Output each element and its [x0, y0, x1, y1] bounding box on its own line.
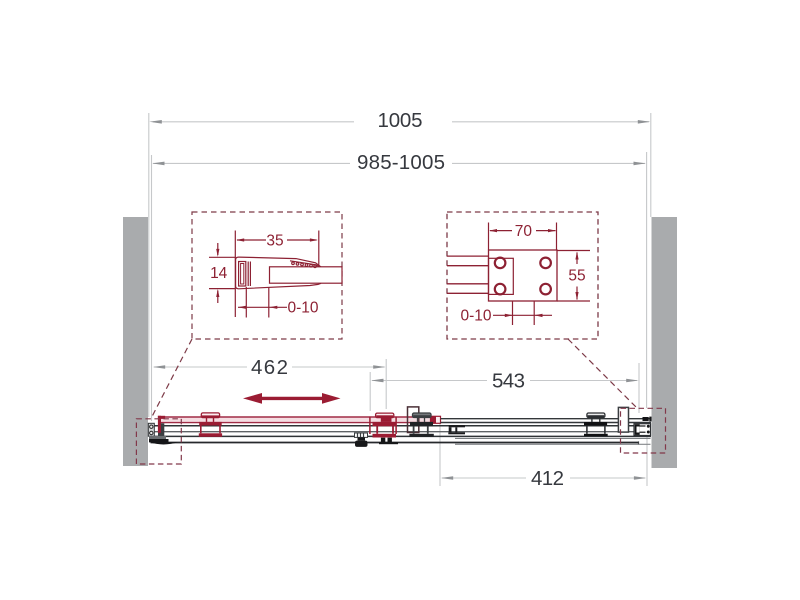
svg-text:0-10: 0-10 — [287, 299, 318, 316]
svg-text:543: 543 — [492, 370, 525, 393]
svg-text:462: 462 — [251, 356, 288, 379]
svg-text:55: 55 — [568, 268, 585, 285]
svg-text:70: 70 — [515, 223, 533, 240]
svg-text:35: 35 — [266, 232, 283, 249]
svg-text:985-1005: 985-1005 — [357, 151, 445, 174]
svg-text:0-10: 0-10 — [460, 308, 491, 325]
svg-text:14: 14 — [210, 265, 228, 282]
svg-text:412: 412 — [531, 467, 564, 490]
svg-text:1005: 1005 — [378, 109, 423, 132]
